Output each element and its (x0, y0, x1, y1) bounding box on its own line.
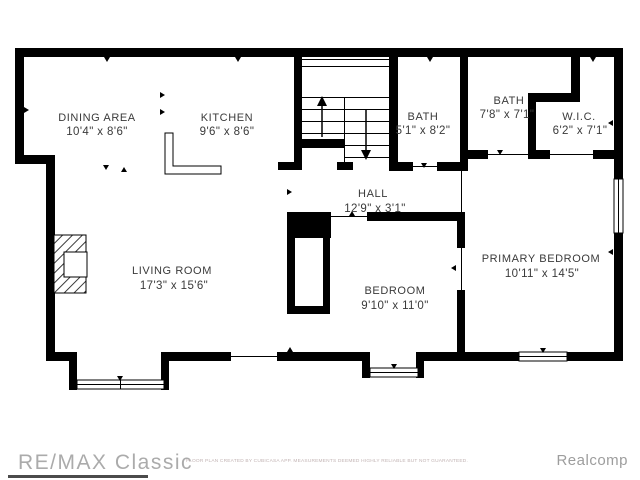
room-label-bath-2: BATH (494, 95, 525, 107)
room-dims-wic: 6'2" x 7'1" (553, 125, 608, 137)
room-label-living-room: LIVING ROOM (132, 265, 212, 277)
room-dims-bedroom: 9'10" x 11'0" (361, 300, 428, 312)
room-dims-bath-2: 7'8" x 7'1" (480, 109, 535, 121)
kitchen-counter (165, 133, 221, 174)
stairs-down-arrowhead-icon (361, 150, 371, 160)
room-dims-kitchen: 9'6" x 8'6" (200, 126, 255, 138)
attribution-text: Realcomp (556, 452, 628, 469)
room-label-bedroom: BEDROOM (364, 285, 425, 297)
room-dims-hall: 12'9" x 3'1" (344, 203, 405, 215)
staircase (302, 60, 389, 171)
room-label-kitchen: KITCHEN (201, 112, 253, 124)
next-page-edge (8, 475, 148, 478)
brand-watermark: RE/MAX Classic (18, 451, 193, 475)
room-label-hall: HALL (358, 188, 388, 200)
room-dims-dining-area: 10'4" x 8'6" (66, 126, 127, 138)
room-dims-bath-1: 5'1" x 8'2" (396, 125, 451, 137)
window-primary-south (519, 352, 567, 361)
stair-treads (302, 60, 389, 171)
floor-plan: DINING AREA 10'4" x 8'6" KITCHEN 9'6" x … (0, 0, 640, 480)
room-label-bath-1: BATH (408, 111, 439, 123)
disclaimer-text: FLOOR PLAN CREATED BY CUBICASA APP. MEAS… (186, 459, 468, 464)
fireplace-firebox (64, 252, 87, 277)
room-label-wic: W.I.C. (562, 111, 596, 123)
fireplace (54, 235, 87, 293)
room-dims-living-room: 17'3" x 15'6" (140, 280, 208, 292)
interior-walls (278, 57, 623, 361)
window-primary-east (614, 179, 623, 233)
window-living-room-bay (77, 380, 164, 389)
window-bedroom-bay (370, 368, 418, 377)
room-dims-primary-bedroom: 10'11" x 14'5" (505, 268, 579, 280)
room-label-primary-bedroom: PRIMARY BEDROOM (482, 253, 601, 265)
room-label-dining-area: DINING AREA (58, 112, 136, 124)
